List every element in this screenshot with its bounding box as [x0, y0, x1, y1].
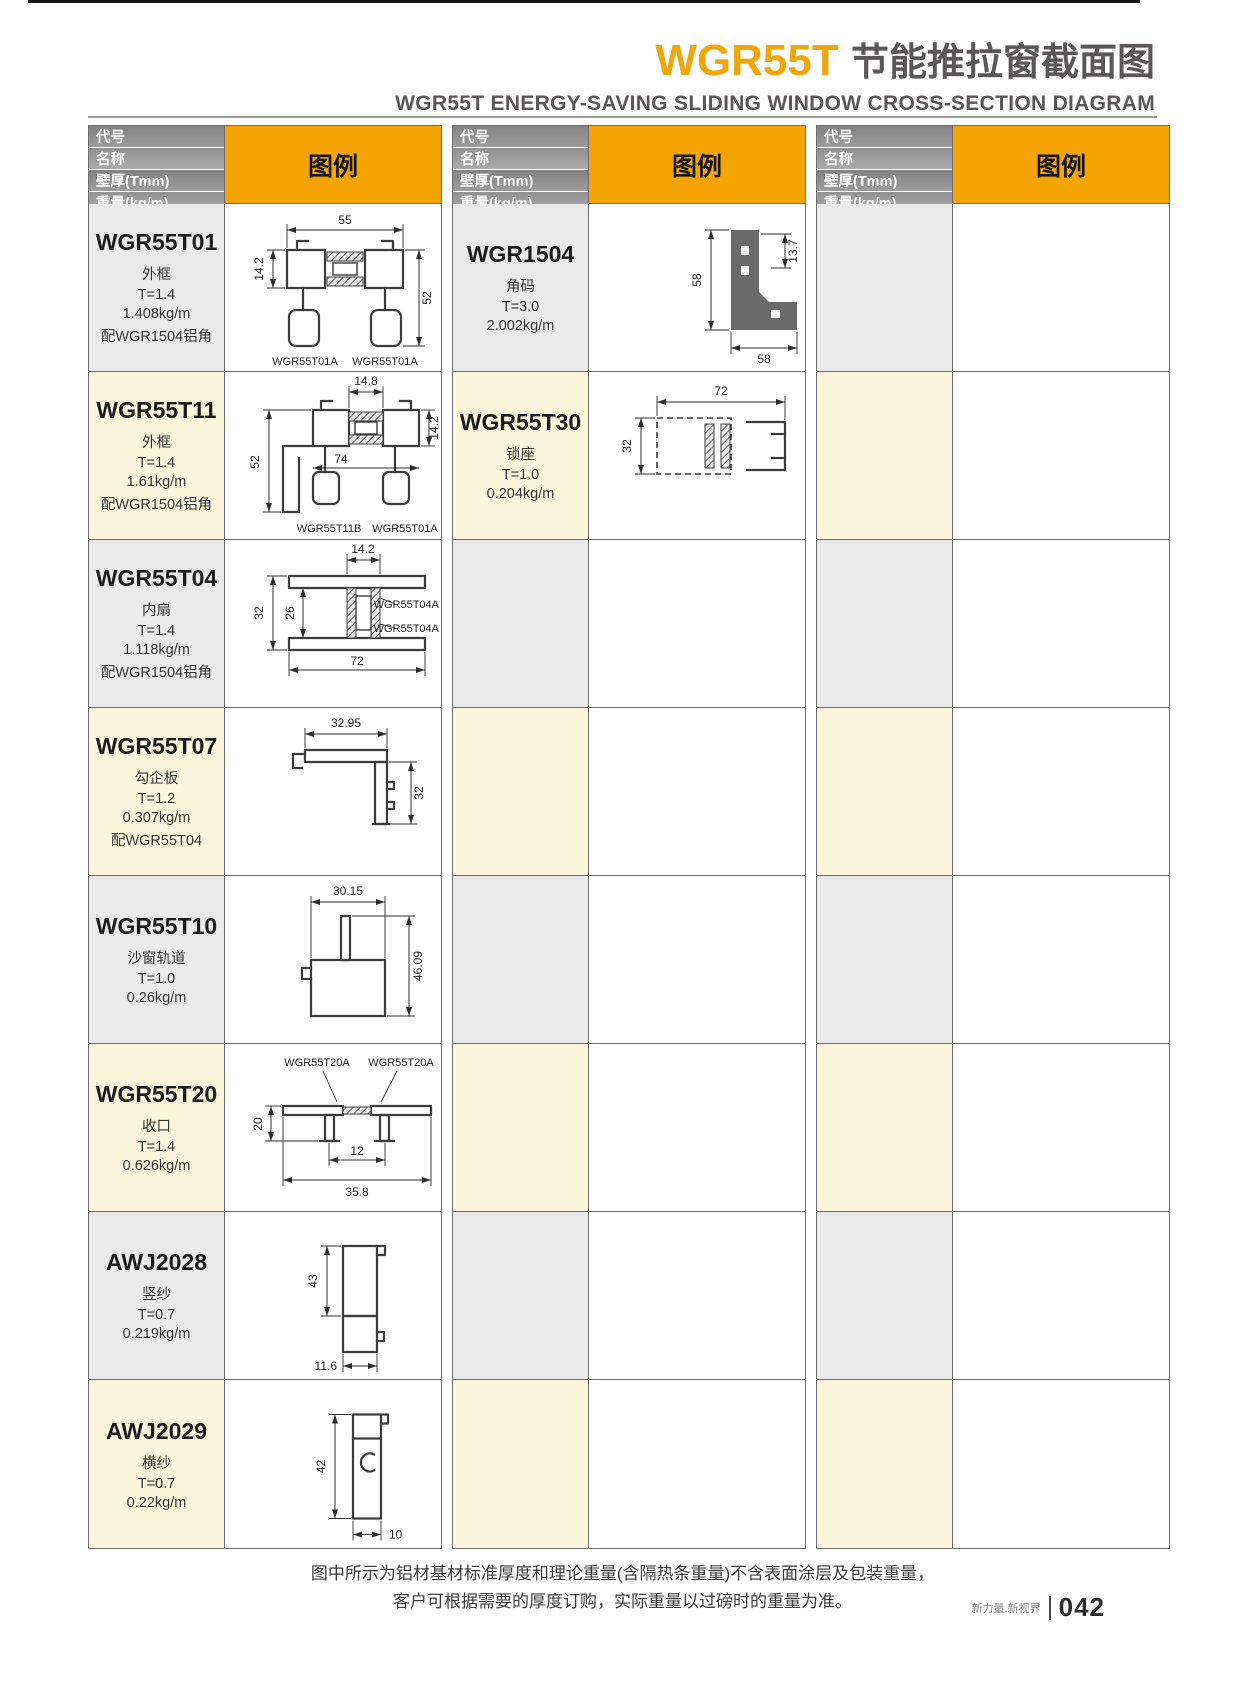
dimension-label: 74 — [334, 452, 348, 466]
profile-name: 外框 — [142, 263, 171, 284]
profile-code: WGR55T10 — [96, 913, 217, 940]
footer-slogan: 新力量.新视界 — [972, 1600, 1041, 1616]
profile-info-cell: WGR55T07 勾企板 T=1.2 0.307kg/m 配WGR55T04 — [89, 708, 225, 875]
empty-info-cell — [817, 372, 953, 539]
empty-row — [817, 1380, 1169, 1548]
cross-section-diagram-wgr55t11: 14.8 52 74 14.2 WGR55T11B — [225, 372, 441, 539]
profile-shape — [302, 916, 385, 1016]
dimension-label: 13.7 — [786, 239, 800, 263]
empty-info-cell — [817, 1380, 953, 1548]
empty-diagram-cell — [953, 1212, 1169, 1379]
dimension-label: 14.2 — [351, 542, 375, 556]
subpart-label: WGR55T04A — [374, 599, 440, 611]
dimension-lines: WGR55T20A WGR55T20A — [284, 1057, 434, 1102]
profile-shape — [353, 1415, 388, 1519]
header-code: 代号 — [453, 126, 588, 147]
header-thickness: 壁厚(Tmm) — [89, 170, 224, 191]
dimension-label: 58 — [690, 273, 704, 287]
profile-thickness: T=1.2 — [138, 791, 175, 807]
dimension-lines: 20 12 35.8 — [251, 1106, 431, 1199]
dimension-label: 72 — [350, 654, 364, 668]
profile-row-awj2029: AWJ2029 横纱 T=0.7 0.22kg/m — [89, 1380, 441, 1548]
profile-diagram-cell: 58 13.7 58 — [589, 204, 805, 371]
table-header: 代号 名称 壁厚(Tmm) 重量(kg/m) 图例 — [817, 126, 1169, 204]
dimension-label: 35.8 — [345, 1185, 369, 1199]
profile-row-awj2028: AWJ2028 竖纱 T=0.7 0.219kg/m — [89, 1212, 441, 1380]
empty-diagram-cell — [589, 1044, 805, 1211]
empty-row — [453, 540, 805, 708]
header-name: 名称 — [89, 148, 224, 169]
empty-diagram-cell — [953, 876, 1169, 1043]
profile-row-wgr1504: WGR1504 角码 T=3.0 2.002kg/m — [453, 204, 805, 372]
dimension-label: 14.8 — [354, 374, 378, 388]
profile-shape — [657, 418, 785, 474]
profile-thickness: T=0.7 — [138, 1476, 175, 1492]
profile-weight: 1.118kg/m — [123, 642, 190, 658]
profile-diagram-cell: 55 14.2 52 WGR55T01A WGR55T01A — [225, 204, 441, 371]
profile-row-wgr55t11: WGR55T11 外框 T=1.4 1.61kg/m 配WGR1504铝角 — [89, 372, 441, 540]
profile-code: WGR55T30 — [460, 409, 581, 436]
profile-name: 勾企板 — [135, 767, 179, 788]
profile-code: AWJ2028 — [106, 1249, 207, 1276]
profile-name: 外框 — [142, 431, 171, 452]
profile-row-wgr55t07: WGR55T07 勾企板 T=1.2 0.307kg/m 配WGR55T04 — [89, 708, 441, 876]
footer-divider — [1049, 1596, 1051, 1620]
dimension-label: 32 — [252, 606, 266, 620]
header-name: 名称 — [817, 148, 952, 169]
table-header: 代号 名称 壁厚(Tmm) 重量(kg/m) 图例 — [89, 126, 441, 204]
dimension-label: 12 — [350, 1144, 364, 1158]
profile-shape — [283, 401, 419, 512]
profile-info-cell: AWJ2029 横纱 T=0.7 0.22kg/m — [89, 1380, 225, 1548]
profile-note: 配WGR1504铝角 — [101, 661, 212, 682]
page-title: WGR55T 节能推拉窗截面图 — [395, 38, 1155, 84]
profile-name: 横纱 — [142, 1452, 171, 1473]
subpart-label: WGR55T01A — [352, 356, 418, 368]
dimension-lines: 30.15 46.09 — [311, 884, 425, 1016]
profile-row-wgr55t01: WGR55T01 外框 T=1.4 1.408kg/m 配WGR1504铝角 — [89, 204, 441, 372]
profile-row-wgr55t20: WGR55T20 收口 T=1.4 0.626kg/m WGR55T20A WG… — [89, 1044, 441, 1212]
profile-code: WGR55T04 — [96, 565, 217, 592]
profile-note: 配WGR1504铝角 — [101, 325, 212, 346]
profile-thickness: T=1.4 — [138, 455, 175, 471]
profile-shape — [343, 1246, 385, 1352]
empty-diagram-cell — [953, 372, 1169, 539]
profile-info-cell: AWJ2028 竖纱 T=0.7 0.219kg/m — [89, 1212, 225, 1379]
empty-diagram-cell — [953, 540, 1169, 707]
profile-shape — [287, 241, 403, 346]
dimension-label: 46.09 — [411, 951, 425, 981]
empty-info-cell — [817, 708, 953, 875]
profile-code: AWJ2029 — [106, 1418, 207, 1445]
profile-table-3: 代号 名称 壁厚(Tmm) 重量(kg/m) 图例 — [816, 125, 1170, 1549]
profile-row-wgr55t30: WGR55T30 锁座 T=1.0 0.204kg/m — [453, 372, 805, 540]
empty-info-cell — [453, 1212, 589, 1379]
empty-diagram-cell — [589, 1380, 805, 1548]
profile-table-1: 代号 名称 壁厚(Tmm) 重量(kg/m) 图例 WGR55T01 外框 T=… — [88, 125, 442, 1549]
empty-row — [453, 708, 805, 876]
dimension-lines: 32.95 32 — [305, 716, 426, 824]
empty-row — [453, 1044, 805, 1212]
profile-name: 沙窗轨道 — [128, 947, 186, 968]
subpart-label: WGR55T04A — [374, 623, 440, 635]
dimension-label: 14.2 — [427, 416, 441, 440]
profile-diagram-cell: WGR55T20A WGR55T20A — [225, 1044, 441, 1211]
empty-row — [817, 1044, 1169, 1212]
profile-weight: 2.002kg/m — [487, 318, 555, 334]
profile-thickness: T=1.4 — [138, 623, 175, 639]
profile-info-cell: WGR55T30 锁座 T=1.0 0.204kg/m — [453, 372, 589, 539]
profile-weight: 0.307kg/m — [123, 810, 191, 826]
empty-info-cell — [817, 540, 953, 707]
dimension-label: 72 — [714, 384, 728, 398]
profile-table-2: 代号 名称 壁厚(Tmm) 重量(kg/m) 图例 WGR1504 角码 T=3… — [452, 125, 806, 1549]
profile-diagram-cell: 32.95 32 — [225, 708, 441, 875]
empty-row — [453, 876, 805, 1044]
header-thickness: 壁厚(Tmm) — [817, 170, 952, 191]
profile-weight: 0.626kg/m — [123, 1158, 191, 1174]
empty-row — [817, 204, 1169, 372]
empty-diagram-cell — [953, 1380, 1169, 1548]
empty-row — [817, 372, 1169, 540]
empty-row — [453, 1380, 805, 1548]
dimension-lines: 14.8 52 74 14.2 WGR55T11B — [248, 374, 441, 535]
subpart-label: WGR55T11B — [297, 523, 362, 535]
empty-info-cell — [453, 1044, 589, 1211]
profile-thickness: T=1.0 — [502, 467, 539, 483]
dimension-label: 55 — [338, 213, 352, 227]
empty-row — [817, 876, 1169, 1044]
profile-shape — [283, 1106, 431, 1141]
dimension-label: 52 — [248, 455, 262, 469]
header-code: 代号 — [817, 126, 952, 147]
page-footer: 新力量.新视界 042 — [972, 1592, 1105, 1623]
profile-diagram-cell: 72 32 — [589, 372, 805, 539]
profile-weight: 1.408kg/m — [123, 306, 191, 322]
top-rule — [28, 0, 1140, 3]
profile-code: WGR55T11 — [96, 397, 216, 424]
empty-info-cell — [453, 876, 589, 1043]
cross-section-diagram-wgr55t20: WGR55T20A WGR55T20A — [225, 1044, 441, 1211]
page-number: 042 — [1059, 1592, 1105, 1623]
empty-diagram-cell — [589, 540, 805, 707]
header-name: 名称 — [453, 148, 588, 169]
profile-thickness: T=3.0 — [502, 299, 539, 315]
page-title-block: WGR55T 节能推拉窗截面图 WGR55T ENERGY-SAVING SLI… — [395, 38, 1155, 116]
profile-name: 锁座 — [506, 443, 535, 464]
profile-info-cell: WGR55T01 外框 T=1.4 1.408kg/m 配WGR1504铝角 — [89, 204, 225, 371]
profile-diagram-cell: 14.8 52 74 14.2 WGR55T11B — [225, 372, 441, 539]
subpart-label: WGR55T01A — [372, 523, 438, 535]
cross-section-diagram-wgr55t30: 72 32 — [589, 372, 805, 539]
profile-weight: 0.204kg/m — [487, 486, 555, 502]
profile-diagram-cell: 30.15 46.09 — [225, 876, 441, 1043]
subpart-label: WGR55T20A — [368, 1057, 434, 1069]
empty-info-cell — [453, 708, 589, 875]
profile-shape — [289, 576, 425, 650]
header-labels: 代号 名称 壁厚(Tmm) 重量(kg/m) — [817, 126, 953, 203]
empty-info-cell — [817, 1212, 953, 1379]
profile-info-cell: WGR55T11 外框 T=1.4 1.61kg/m 配WGR1504铝角 — [89, 372, 225, 539]
profile-weight: 0.22kg/m — [127, 1495, 187, 1511]
header-labels: 代号 名称 壁厚(Tmm) 重量(kg/m) — [453, 126, 589, 203]
empty-info-cell — [817, 876, 953, 1043]
cross-section-diagram-wgr55t10: 30.15 46.09 — [225, 876, 441, 1043]
dimension-lines: 14.2 32 26 72 WGR55T04A — [252, 542, 440, 676]
header-legend: 图例 — [589, 126, 805, 203]
dimension-label: 32 — [412, 786, 426, 800]
title-underline — [88, 116, 1157, 118]
profile-tables: 代号 名称 壁厚(Tmm) 重量(kg/m) 图例 WGR55T01 外框 T=… — [88, 125, 1170, 1549]
dimension-label: 14.2 — [252, 257, 266, 281]
profile-weight: 1.61kg/m — [127, 474, 187, 490]
dimension-label: 32.95 — [331, 716, 361, 730]
empty-diagram-cell — [953, 708, 1169, 875]
profile-name: 角码 — [506, 275, 535, 296]
dimension-label: 11.6 — [315, 1359, 338, 1373]
page-subtitle: WGR55T ENERGY-SAVING SLIDING WINDOW CROS… — [395, 92, 1155, 116]
profile-diagram-cell: 43 11.6 — [225, 1212, 441, 1379]
empty-info-cell — [817, 204, 953, 371]
empty-row — [817, 540, 1169, 708]
subpart-label: WGR55T20A — [284, 1057, 350, 1069]
cross-section-diagram-wgr55t07: 32.95 32 — [225, 708, 441, 875]
empty-row — [817, 1212, 1169, 1380]
subpart-label: WGR55T01A — [272, 356, 338, 368]
empty-row — [453, 1212, 805, 1380]
header-legend: 图例 — [225, 126, 441, 203]
dimension-label: 10 — [389, 1528, 403, 1542]
profile-name: 竖纱 — [142, 1283, 171, 1304]
profile-code: WGR55T07 — [96, 733, 217, 760]
profile-info-cell: WGR55T20 收口 T=1.4 0.626kg/m — [89, 1044, 225, 1211]
profile-name: 收口 — [142, 1115, 171, 1136]
header-code: 代号 — [89, 126, 224, 147]
header-thickness: 壁厚(Tmm) — [453, 170, 588, 191]
title-series-code: WGR55T — [655, 36, 838, 85]
profile-thickness: T=1.4 — [138, 1139, 175, 1155]
empty-row — [817, 708, 1169, 876]
dimension-label: 43 — [306, 1274, 320, 1288]
empty-diagram-cell — [589, 1212, 805, 1379]
dimension-label: 32 — [620, 439, 634, 453]
dimension-label: 58 — [757, 352, 771, 366]
profile-diagram-cell: 42 10 — [225, 1380, 441, 1548]
cross-section-diagram-wgr1504: 58 13.7 58 — [589, 204, 805, 371]
profile-name: 内扇 — [142, 599, 171, 620]
profile-info-cell: WGR1504 角码 T=3.0 2.002kg/m — [453, 204, 589, 371]
header-labels: 代号 名称 壁厚(Tmm) 重量(kg/m) — [89, 126, 225, 203]
empty-info-cell — [817, 1044, 953, 1211]
cross-section-diagram-wgr55t04: 14.2 32 26 72 WGR55T04A — [225, 540, 441, 707]
profile-code: WGR1504 — [467, 241, 574, 268]
dimension-label: 42 — [314, 1460, 328, 1474]
dimension-lines: 55 14.2 52 WGR55T01A WGR55T01A — [252, 213, 434, 368]
profile-thickness: T=1.4 — [138, 287, 175, 303]
dimension-label: 20 — [251, 1117, 265, 1131]
cross-section-diagram-wgr55t01: 55 14.2 52 WGR55T01A WGR55T01A — [225, 204, 441, 371]
empty-info-cell — [453, 1380, 589, 1548]
profile-thickness: T=1.0 — [138, 971, 175, 987]
profile-info-cell: WGR55T04 内扇 T=1.4 1.118kg/m 配WGR1504铝角 — [89, 540, 225, 707]
dimension-label: 26 — [283, 606, 297, 620]
profile-note: 配WGR55T04 — [111, 829, 202, 850]
title-chinese: 节能推拉窗截面图 — [851, 42, 1155, 84]
cross-section-diagram-awj2029: 42 10 — [225, 1380, 441, 1548]
footnote-line-1: 图中所示为铝材基材标准厚度和理论重量(含隔热条重量)不含表面涂层及包装重量， — [88, 1560, 1157, 1588]
empty-info-cell — [453, 540, 589, 707]
dimension-label: 52 — [420, 291, 434, 305]
profile-shape — [293, 750, 394, 824]
profile-weight: 0.219kg/m — [123, 1326, 191, 1342]
profile-info-cell: WGR55T10 沙窗轨道 T=1.0 0.26kg/m — [89, 876, 225, 1043]
profile-code: WGR55T01 — [96, 229, 217, 256]
profile-diagram-cell: 14.2 32 26 72 WGR55T04A — [225, 540, 441, 707]
dimension-lines: 72 32 — [620, 384, 785, 474]
profile-weight: 0.26kg/m — [127, 990, 187, 1006]
profile-code: WGR55T20 — [96, 1081, 217, 1108]
empty-diagram-cell — [953, 204, 1169, 371]
dimension-lines: 43 11.6 — [306, 1246, 377, 1373]
empty-diagram-cell — [589, 708, 805, 875]
table-header: 代号 名称 壁厚(Tmm) 重量(kg/m) 图例 — [453, 126, 805, 204]
header-legend: 图例 — [953, 126, 1169, 203]
empty-diagram-cell — [953, 1044, 1169, 1211]
catalog-page: WGR55T 节能推拉窗截面图 WGR55T ENERGY-SAVING SLI… — [0, 0, 1239, 1681]
dimension-lines: 42 10 — [314, 1415, 403, 1542]
profile-row-wgr55t04: WGR55T04 内扇 T=1.4 1.118kg/m 配WGR1504铝角 — [89, 540, 441, 708]
profile-thickness: T=0.7 — [138, 1307, 175, 1323]
dimension-label: 30.15 — [333, 884, 363, 898]
empty-diagram-cell — [589, 876, 805, 1043]
profile-note: 配WGR1504铝角 — [101, 493, 212, 514]
cross-section-diagram-awj2028: 43 11.6 — [225, 1212, 441, 1379]
profile-row-wgr55t10: WGR55T10 沙窗轨道 T=1.0 0.26kg/m — [89, 876, 441, 1044]
